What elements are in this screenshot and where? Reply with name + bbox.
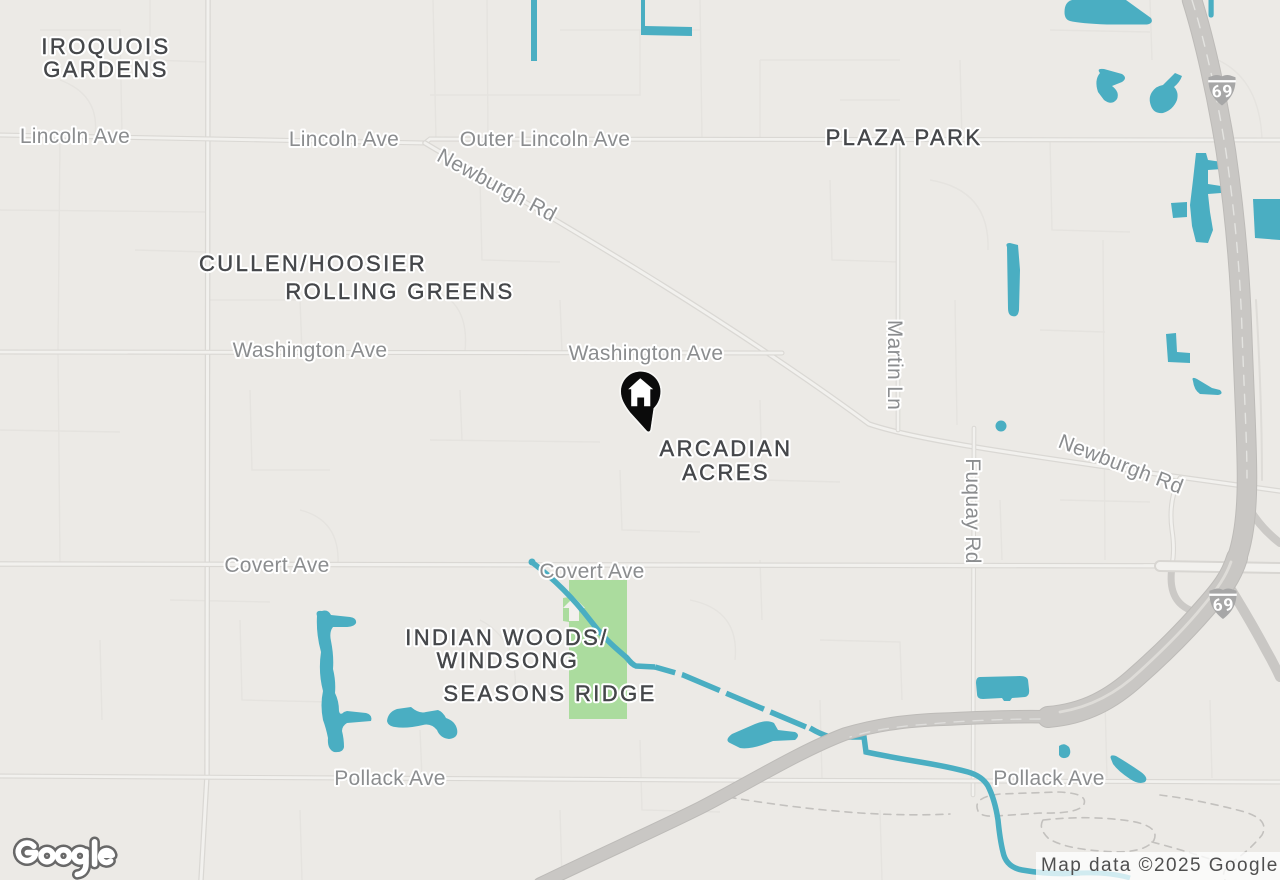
svg-text:ARCADIAN: ARCADIAN xyxy=(660,436,793,461)
svg-text:Lincoln Ave: Lincoln Ave xyxy=(289,128,399,151)
svg-text:Pollack Ave: Pollack Ave xyxy=(993,767,1104,790)
svg-text:Covert Ave: Covert Ave xyxy=(224,554,329,577)
svg-text:Outer Lincoln Ave: Outer Lincoln Ave xyxy=(460,128,631,151)
svg-text:Washington Ave: Washington Ave xyxy=(233,339,388,362)
svg-text:Lincoln Ave: Lincoln Ave xyxy=(20,125,130,148)
svg-text:Pollack Ave: Pollack Ave xyxy=(334,767,445,790)
svg-text:Covert Ave: Covert Ave xyxy=(539,560,644,583)
svg-text:SEASONS RIDGE: SEASONS RIDGE xyxy=(443,681,656,706)
svg-text:ACRES: ACRES xyxy=(682,460,770,485)
svg-text:Washington Ave: Washington Ave xyxy=(569,342,724,365)
svg-text:IROQUOIS: IROQUOIS xyxy=(41,34,170,59)
svg-text:Map data ©2025 Google: Map data ©2025 Google xyxy=(1041,855,1279,876)
svg-text:INDIAN WOODS/: INDIAN WOODS/ xyxy=(405,625,609,650)
svg-text:GARDENS: GARDENS xyxy=(43,57,169,82)
svg-text:PLAZA PARK: PLAZA PARK xyxy=(826,125,983,150)
svg-text:ROLLING GREENS: ROLLING GREENS xyxy=(285,279,514,304)
svg-text:WINDSONG: WINDSONG xyxy=(437,648,580,673)
svg-text:CULLEN/HOOSIER: CULLEN/HOOSIER xyxy=(199,251,427,276)
svg-text:Fuquay Rd: Fuquay Rd xyxy=(961,458,984,563)
svg-text:Martin Ln: Martin Ln xyxy=(883,320,906,410)
